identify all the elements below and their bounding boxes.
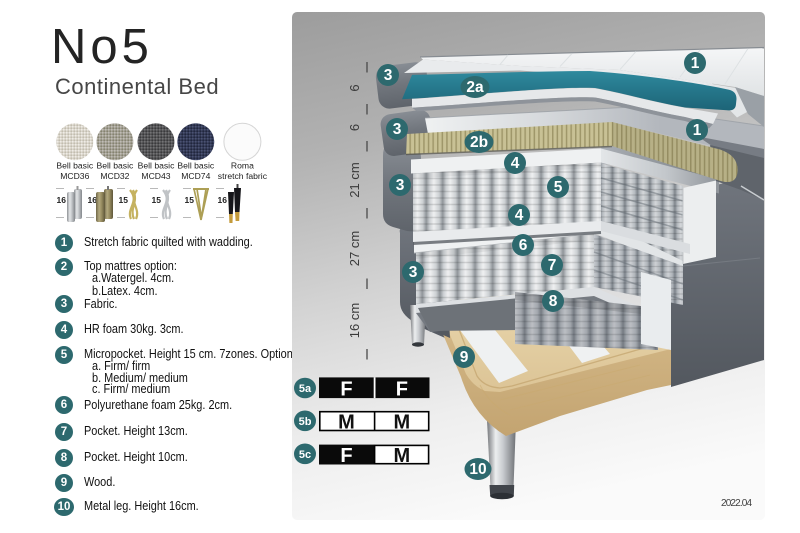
svg-text:9: 9 (460, 349, 469, 366)
svg-text:3: 3 (396, 177, 405, 194)
svg-text:16 cm: 16 cm (347, 303, 362, 338)
svg-text:1: 1 (691, 55, 700, 72)
svg-text:8: 8 (549, 293, 558, 310)
svg-text:F: F (396, 378, 408, 400)
svg-text:27 cm: 27 cm (347, 231, 362, 266)
svg-text:5c: 5c (299, 449, 311, 461)
svg-text:2a: 2a (466, 79, 484, 96)
svg-text:4: 4 (515, 207, 524, 224)
svg-text:F: F (340, 378, 352, 400)
svg-text:5a: 5a (299, 383, 312, 395)
svg-text:21 cm: 21 cm (347, 162, 362, 197)
svg-text:M: M (338, 412, 355, 434)
svg-text:10: 10 (469, 461, 486, 478)
svg-text:6: 6 (347, 84, 362, 91)
svg-text:3: 3 (384, 67, 393, 84)
svg-text:5: 5 (554, 179, 563, 196)
svg-text:M: M (393, 412, 410, 434)
svg-text:5b: 5b (299, 416, 312, 428)
svg-text:2022.04: 2022.04 (721, 498, 752, 509)
svg-text:F: F (340, 445, 352, 467)
svg-text:2b: 2b (470, 134, 488, 151)
svg-text:7: 7 (548, 257, 557, 274)
svg-text:6: 6 (519, 237, 528, 254)
svg-text:3: 3 (393, 121, 402, 138)
svg-text:6: 6 (347, 124, 362, 131)
svg-text:3: 3 (409, 264, 418, 281)
svg-text:M: M (393, 445, 410, 467)
svg-text:1: 1 (693, 122, 702, 139)
svg-text:4: 4 (511, 155, 520, 172)
